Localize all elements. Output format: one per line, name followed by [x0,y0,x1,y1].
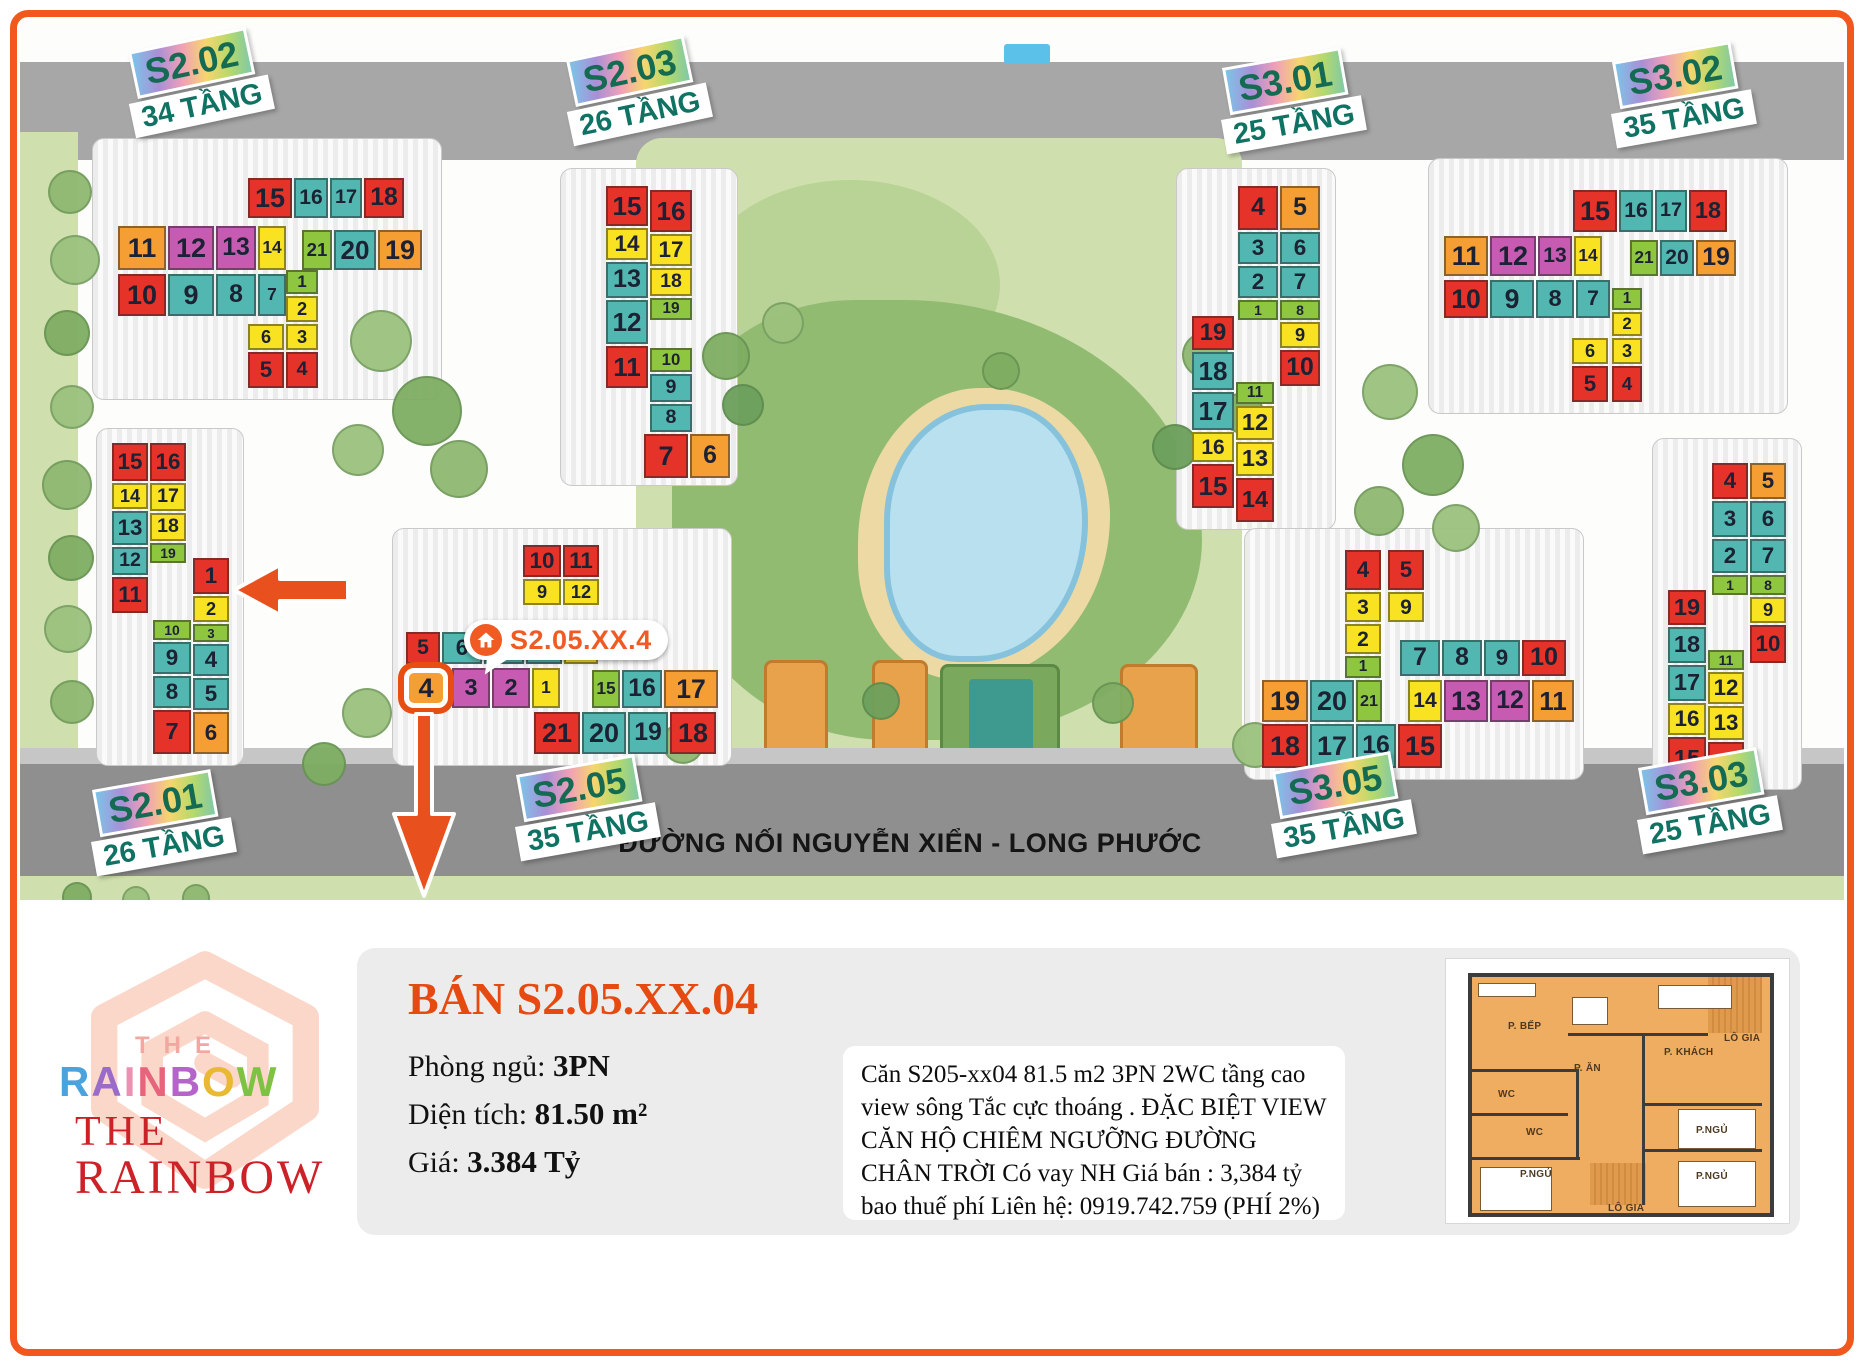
rainbow-logo: THE RAINBOW THE RAINBOW [55,950,355,1250]
dining-table [1572,997,1608,1025]
unit-s3-01-4: 4 [1238,186,1278,230]
unit-s3-03-3: 3 [1712,501,1748,537]
unit-s3-02-7: 7 [1576,280,1610,318]
unit-s2-02-7: 7 [258,274,286,316]
unit-s3-01-12: 12 [1236,406,1274,440]
unit-s3-01-18: 18 [1192,352,1234,390]
listing-description: Căn S205-xx04 81.5 m2 3PN 2WC tầng cao v… [843,1046,1345,1220]
unit-s3-02-4: 4 [1612,366,1642,402]
spec-area: Diện tích: 81.50 m² [408,1096,647,1132]
listing-title: BÁN S2.05.XX.04 [408,972,758,1025]
room-label: LÔ GIA [1724,1033,1760,1044]
left-arrow [232,560,352,620]
unit-s3-01-13: 13 [1236,442,1274,476]
unit-s3-01-15: 15 [1192,464,1234,508]
unit-s2-05-11: 11 [563,545,599,577]
unit-s3-02-3: 3 [1612,338,1642,364]
room-label: P. KHÁCH [1664,1047,1713,1058]
unit-s3-01-9: 9 [1280,322,1320,348]
unit-s3-05-12: 12 [1490,680,1530,722]
unit-s3-03-8: 8 [1750,575,1786,595]
tree [44,310,90,356]
unit-s2-01-10: 10 [153,620,191,640]
screenshot-root: ĐƯỜNG NỐI NGUYỄN XIỂN - LONG PHƯỚC S2.05… [0,0,1864,1366]
unit-s3-05-9: 9 [1388,592,1424,622]
unit-s3-01-11: 11 [1236,382,1274,404]
unit-s3-05-7: 7 [1400,640,1440,676]
unit-s2-03-17: 17 [650,234,692,266]
unit-s2-02-10: 10 [118,274,166,316]
tree [430,440,488,498]
unit-s3-05-1: 1 [1345,656,1381,678]
unit-s2-01-12: 12 [112,547,148,575]
unit-s2-05-17: 17 [664,670,718,708]
unit-s3-05-13: 13 [1444,680,1488,722]
unit-s3-03-13: 13 [1708,706,1744,740]
tree [1354,486,1404,536]
unit-s3-05-11: 11 [1532,680,1574,722]
tree [702,332,750,380]
room-label: P.NGỦ [1520,1169,1552,1180]
unit-s2-05-18: 18 [670,712,716,754]
floorplan-card: P. BẾPP. ĂNP. KHÁCHLÔ GIAWCWCP.NGỦP.NGỦP… [1445,958,1790,1224]
room-label: LÔ GIA [1608,1203,1644,1214]
unit-s2-01-9: 9 [153,642,191,674]
unit-s3-01-14: 14 [1236,478,1274,522]
spec-bedrooms-value: 3PN [553,1048,610,1083]
unit-s3-05-4: 4 [1345,550,1381,590]
unit-s3-01-1: 1 [1238,300,1278,320]
unit-s2-01-19: 19 [150,543,186,563]
logo-rainbow-colored: RAINBOW [59,1058,278,1106]
unit-s3-02-18: 18 [1689,190,1727,232]
unit-s2-03-6: 6 [690,434,730,478]
unit-s3-01-19: 19 [1192,316,1234,350]
tree [48,170,92,214]
logo-letter: R [59,1058,91,1105]
unit-s2-01-2: 2 [193,596,229,622]
unit-s2-05-5: 5 [406,632,440,664]
unit-s2-05-19: 19 [628,712,668,754]
bottom-green-strip [20,876,1844,900]
unit-s2-02-1: 1 [286,270,318,294]
unit-s3-01-8: 8 [1280,300,1320,320]
unit-s3-05-14: 14 [1408,680,1442,722]
unit-s2-05-9: 9 [523,579,561,605]
unit-s3-02-10: 10 [1444,280,1488,318]
spec-bedrooms-label: Phòng ngủ: [408,1050,546,1083]
unit-s2-01-11: 11 [112,577,148,613]
unit-s2-02-18: 18 [364,178,404,218]
room-label: P. ĂN [1574,1063,1601,1074]
unit-s3-05-19: 19 [1262,680,1308,722]
unit-s2-02-17: 17 [330,178,362,218]
unit-s2-03-9: 9 [650,374,692,402]
unit-s3-05-20: 20 [1310,680,1354,722]
unit-s2-02-13: 13 [216,226,256,270]
room-label: P.NGỦ [1696,1125,1728,1136]
unit-s3-05-3: 3 [1345,592,1381,622]
unit-s2-02-3: 3 [286,324,318,350]
unit-s3-05-2: 2 [1345,624,1381,654]
unit-s3-05-8: 8 [1442,640,1482,676]
kitchen-counter [1478,983,1536,997]
unit-s2-02-11: 11 [118,226,166,270]
tree [1402,434,1464,496]
logo-letter: O [202,1058,237,1105]
unit-s3-03-6: 6 [1750,501,1786,537]
unit-s3-03-4: 4 [1712,463,1748,499]
unit-marker-label: S2.05.XX.4 [510,625,652,656]
tree [48,535,94,581]
room-label: P.NGỦ [1696,1171,1728,1182]
tennis-court-inner [969,679,1033,759]
tree [1432,504,1480,552]
road-name-label: ĐƯỜNG NỐI NGUYỄN XIỂN - LONG PHƯỚC [560,828,1260,859]
unit-s2-01-6: 6 [193,712,229,754]
spec-area-value: 81.50 m² [535,1096,648,1131]
unit-s3-01-10: 10 [1280,350,1320,386]
tree [862,682,900,720]
unit-s2-02-4: 4 [286,352,318,388]
unit-s2-01-1: 1 [193,558,229,594]
tree [50,235,100,285]
unit-s2-03-18: 18 [650,268,692,296]
unit-s2-01-7: 7 [153,710,191,754]
unit-s3-01-5: 5 [1280,186,1320,230]
unit-s2-05-15: 15 [592,670,620,708]
spec-price-value: 3.384 Tỷ [467,1144,580,1179]
unit-s2-05-10: 10 [523,545,561,577]
unit-s3-03-7: 7 [1750,539,1786,573]
balcony [1590,1163,1646,1205]
unit-s2-01-4: 4 [193,644,229,676]
unit-s2-01-17: 17 [150,483,186,511]
unit-s3-01-2: 2 [1238,266,1278,298]
left-green-strip [20,132,78,754]
tree [44,605,92,653]
unit-s3-02-13: 13 [1538,236,1572,276]
logo-letter: A [91,1058,123,1105]
sofa [1658,985,1732,1009]
unit-s3-02-1: 1 [1612,288,1642,310]
unit-s2-02-12: 12 [168,226,214,270]
unit-s3-02-8: 8 [1536,280,1574,318]
unit-s3-02-16: 16 [1619,190,1653,232]
room-label: WC [1526,1127,1543,1138]
unit-s2-05-20: 20 [582,712,626,754]
unit-s3-03-1: 1 [1712,575,1748,595]
unit-s3-02-2: 2 [1612,312,1642,336]
spec-area-label: Diện tích: [408,1098,527,1131]
logo-letter: W [237,1058,279,1105]
logo-rainbow-serif: RAINBOW [75,1150,325,1205]
unit-s3-01-7: 7 [1280,266,1320,298]
unit-s3-03-5: 5 [1750,463,1786,499]
room-label: WC [1498,1089,1515,1100]
unit-s2-05-4: 4 [404,668,448,708]
unit-s2-01-18: 18 [150,513,186,541]
unit-s3-01-16: 16 [1192,432,1234,462]
unit-s3-02-15: 15 [1573,190,1617,232]
tree [302,742,346,786]
unit-s3-02-11: 11 [1444,236,1488,276]
unit-s3-03-18: 18 [1668,627,1706,663]
unit-s3-02-12: 12 [1490,236,1536,276]
tree [332,424,384,476]
unit-s2-02-14: 14 [258,226,286,270]
main-road [20,764,1844,876]
unit-s3-05-21: 21 [1356,680,1382,722]
unit-s2-03-10: 10 [650,348,692,372]
unit-s2-02-2: 2 [286,296,318,322]
unit-s3-03-16: 16 [1668,703,1706,735]
unit-s3-03-17: 17 [1668,665,1706,701]
room-label: P. BẾP [1508,1021,1541,1032]
unit-s3-02-19: 19 [1696,240,1736,276]
tree [762,302,804,344]
unit-s2-02-19: 19 [378,230,422,270]
unit-s2-02-15: 15 [248,178,292,218]
spec-price: Giá: 3.384 Tỷ [408,1144,580,1180]
unit-s2-05-12: 12 [563,579,599,605]
tree [50,385,94,429]
unit-s2-03-19: 19 [650,298,692,320]
unit-s3-03-19: 19 [1668,590,1706,625]
unit-s2-03-14: 14 [606,228,648,260]
logo-the-small: THE [135,1032,225,1060]
tree [50,680,94,724]
unit-s2-03-8: 8 [650,404,692,432]
unit-s3-03-11: 11 [1708,650,1744,670]
unit-s2-01-3: 3 [193,624,229,642]
unit-s3-05-9: 9 [1484,640,1520,676]
unit-s3-01-17: 17 [1192,392,1234,430]
unit-s3-03-2: 2 [1712,539,1748,573]
unit-s2-03-15: 15 [606,186,648,226]
unit-s3-02-20: 20 [1660,240,1694,276]
unit-s2-05-1: 1 [532,668,560,708]
unit-s3-02-9: 9 [1490,280,1534,318]
unit-s2-03-16: 16 [650,190,692,232]
tree [350,310,412,372]
unit-s3-02-21: 21 [1630,240,1658,276]
logo-letter: B [170,1058,202,1105]
unit-s3-02-6: 6 [1572,338,1608,364]
home-icon [470,624,502,656]
unit-s3-03-10: 10 [1750,625,1786,663]
unit-marker-bubble: S2.05.XX.4 [464,620,668,660]
tree [1092,682,1134,724]
unit-s2-03-7: 7 [644,434,688,478]
tree [722,384,764,426]
unit-s2-02-21: 21 [302,230,332,270]
unit-s2-03-11: 11 [606,346,648,388]
unit-s3-01-6: 6 [1280,232,1320,264]
unit-s2-03-12: 12 [606,300,648,344]
unit-s3-05-18: 18 [1262,724,1308,768]
logo-letter: N [137,1058,169,1105]
down-arrow [386,712,462,900]
spec-price-label: Giá: [408,1146,460,1179]
unit-s3-05-5: 5 [1388,550,1424,590]
tree [42,460,92,510]
unit-s2-02-6: 6 [248,324,284,350]
unit-s3-02-14: 14 [1574,236,1602,276]
unit-s2-02-20: 20 [334,230,376,270]
floorplan: P. BẾPP. ĂNP. KHÁCHLÔ GIAWCWCP.NGỦP.NGỦP… [1468,973,1774,1217]
unit-s2-03-13: 13 [606,262,648,298]
map-blue-badge [1004,44,1050,64]
unit-s2-05-16: 16 [622,670,662,708]
tree [1362,364,1418,420]
bed [1678,1161,1756,1207]
tree [342,688,392,738]
unit-s2-02-5: 5 [248,352,284,388]
unit-s2-05-21: 21 [534,712,580,754]
unit-s2-02-9: 9 [168,274,214,316]
logo-letter: I [124,1058,138,1105]
unit-s3-03-12: 12 [1708,672,1744,704]
unit-s2-01-13: 13 [112,511,148,545]
unit-s3-01-3: 3 [1238,232,1278,264]
logo-the-serif: THE [75,1108,169,1156]
unit-s3-03-9: 9 [1750,597,1786,623]
unit-s2-01-8: 8 [153,676,191,708]
unit-s3-02-5: 5 [1572,366,1608,402]
tree [392,376,462,446]
site-map: ĐƯỜNG NỐI NGUYỄN XIỂN - LONG PHƯỚC S2.05… [20,20,1844,900]
unit-s2-01-16: 16 [150,443,186,481]
unit-s2-01-15: 15 [112,443,148,481]
spec-bedrooms: Phòng ngủ: 3PN [408,1048,610,1084]
unit-s2-02-8: 8 [216,274,256,316]
tree [982,352,1020,390]
unit-s2-02-16: 16 [294,178,328,218]
unit-s3-02-17: 17 [1655,190,1687,232]
unit-s2-01-5: 5 [193,678,229,710]
unit-s2-01-14: 14 [112,483,148,509]
unit-s3-05-10: 10 [1522,640,1566,676]
